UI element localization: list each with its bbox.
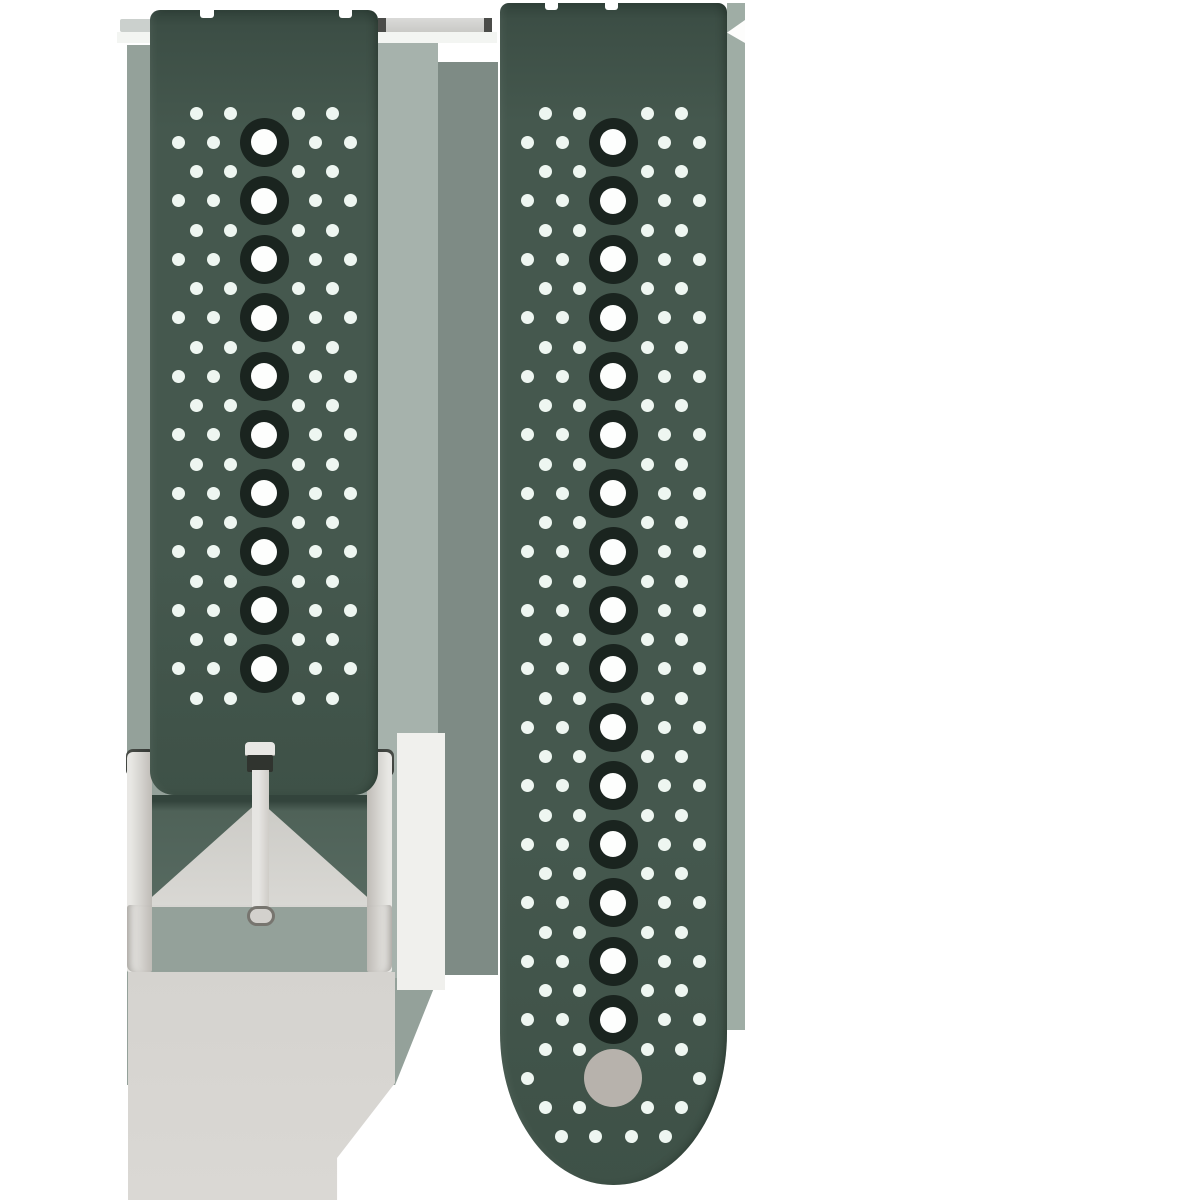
- vent-dot: [172, 428, 185, 441]
- vent-dot: [658, 136, 671, 149]
- strap-buckle-hole-opening: [600, 890, 626, 916]
- vent-dot: [675, 341, 688, 354]
- vent-dot: [309, 136, 322, 149]
- vent-dot: [539, 458, 552, 471]
- vent-dot: [224, 107, 237, 120]
- vent-dot: [344, 136, 357, 149]
- vent-dot: [172, 194, 185, 207]
- strap-buckle-hole: [589, 469, 638, 518]
- vent-dot: [344, 604, 357, 617]
- spring-bar-highlight: [378, 32, 497, 43]
- vent-dot: [539, 867, 552, 880]
- vent-dot: [641, 575, 654, 588]
- vent-dot: [292, 107, 305, 120]
- vent-dot: [693, 779, 706, 792]
- vent-dot: [556, 487, 569, 500]
- vent-dot: [521, 838, 534, 851]
- vent-dot: [521, 1072, 534, 1085]
- spring-bar-tip-dark-right: [484, 18, 492, 32]
- vent-dot: [556, 1013, 569, 1026]
- vent-dot: [573, 867, 586, 880]
- vent-dot: [309, 370, 322, 383]
- vent-dot: [658, 779, 671, 792]
- vent-dot: [539, 282, 552, 295]
- vent-dot: [309, 604, 322, 617]
- strap-buckle-hole: [240, 586, 289, 635]
- lug-slot-notch: [339, 10, 352, 18]
- vent-dot: [521, 896, 534, 909]
- vent-dot: [573, 692, 586, 705]
- strap-buckle-hole-opening: [600, 305, 626, 331]
- vent-dot: [693, 253, 706, 266]
- vent-dot: [521, 253, 534, 266]
- vent-dot: [573, 1043, 586, 1056]
- vent-dot: [573, 1101, 586, 1114]
- vent-dot: [573, 575, 586, 588]
- vent-dot: [675, 224, 688, 237]
- strap-buckle-hole-opening: [600, 597, 626, 623]
- vent-dot: [172, 253, 185, 266]
- vent-dot: [292, 165, 305, 178]
- vent-dot: [589, 1130, 602, 1143]
- vent-dot: [521, 194, 534, 207]
- vent-dot: [207, 311, 220, 324]
- vent-dot: [573, 224, 586, 237]
- vent-dot: [556, 604, 569, 617]
- vent-dot: [573, 282, 586, 295]
- vent-dot: [539, 165, 552, 178]
- vent-dot: [539, 107, 552, 120]
- strap-buckle-hole-opening: [251, 129, 277, 155]
- vent-dot: [675, 1043, 688, 1056]
- vent-dot: [521, 545, 534, 558]
- vent-dot: [326, 458, 339, 471]
- vent-dot: [556, 838, 569, 851]
- vent-dot: [658, 955, 671, 968]
- strap-buckle-hole-opening: [251, 539, 277, 565]
- vent-dot: [190, 458, 203, 471]
- vent-dot: [224, 633, 237, 646]
- vent-dot: [693, 311, 706, 324]
- vent-dot: [292, 458, 305, 471]
- strap-buckle-hole-opening: [600, 363, 626, 389]
- vent-dot: [190, 165, 203, 178]
- vent-dot: [658, 311, 671, 324]
- vent-dot: [658, 428, 671, 441]
- vent-dot: [344, 487, 357, 500]
- vent-dot: [521, 136, 534, 149]
- vent-dot: [641, 458, 654, 471]
- vent-dot: [190, 575, 203, 588]
- vent-dot: [172, 487, 185, 500]
- strap-buckle-hole-opening: [251, 305, 277, 331]
- spring-bar-pin: [378, 18, 492, 32]
- vent-dot: [539, 341, 552, 354]
- vent-dot: [207, 194, 220, 207]
- vent-dot: [521, 311, 534, 324]
- vent-dot: [172, 136, 185, 149]
- strap-buckle-hole: [589, 644, 638, 693]
- vent-dot: [556, 194, 569, 207]
- vent-dot: [675, 458, 688, 471]
- vent-dot: [675, 750, 688, 763]
- vent-dot: [658, 545, 671, 558]
- tang-cap: [245, 742, 275, 755]
- strap-buckle-hole-opening: [251, 246, 277, 272]
- vent-dot: [172, 662, 185, 675]
- vent-dot: [309, 311, 322, 324]
- strap-buckle-hole: [240, 410, 289, 459]
- strap-buckle-hole-opening: [600, 948, 626, 974]
- strap-buckle-hole: [589, 995, 638, 1044]
- vent-dot: [292, 341, 305, 354]
- vent-dot: [224, 516, 237, 529]
- tang-shaft: [252, 770, 269, 910]
- vent-dot: [556, 896, 569, 909]
- vent-dot: [309, 662, 322, 675]
- spring-bar-tip-left-strap-highlight: [117, 32, 150, 43]
- vent-dot: [172, 604, 185, 617]
- vent-dot: [190, 692, 203, 705]
- vent-dot: [344, 545, 357, 558]
- vent-dot: [539, 224, 552, 237]
- vent-dot: [521, 779, 534, 792]
- strap-buckle-hole-opening: [251, 363, 277, 389]
- strap-buckle-hole-opening: [600, 480, 626, 506]
- vent-dot: [326, 224, 339, 237]
- strap-buckle-hole-opening: [251, 188, 277, 214]
- vent-dot: [641, 107, 654, 120]
- strap-buckle-hole: [589, 293, 638, 342]
- vent-dot: [693, 662, 706, 675]
- vent-dot: [556, 955, 569, 968]
- vent-dot: [292, 633, 305, 646]
- vent-dot: [573, 399, 586, 412]
- vent-dot: [539, 575, 552, 588]
- vent-dot: [190, 224, 203, 237]
- vent-dot: [539, 516, 552, 529]
- vent-dot: [326, 692, 339, 705]
- strap-buckle-hole-opening: [600, 539, 626, 565]
- vent-dot: [539, 1101, 552, 1114]
- vent-dot: [207, 545, 220, 558]
- strap-buckle-hole: [589, 527, 638, 576]
- vent-dot: [309, 487, 322, 500]
- strap-buckle-hole-opening: [600, 714, 626, 740]
- background-band-right: [727, 3, 745, 1030]
- vent-dot: [539, 750, 552, 763]
- spring-bar-tip-left-strap: [120, 19, 150, 32]
- vent-dot: [573, 516, 586, 529]
- vent-dot: [292, 399, 305, 412]
- strap-buckle-hole: [240, 235, 289, 284]
- vent-dot: [207, 253, 220, 266]
- strap-end-plug-circle: [584, 1049, 642, 1107]
- vent-dot: [641, 282, 654, 295]
- vent-dot: [224, 575, 237, 588]
- vent-dot: [658, 1013, 671, 1026]
- vent-dot: [292, 224, 305, 237]
- vent-dot: [641, 341, 654, 354]
- vent-dot: [573, 165, 586, 178]
- vent-dot: [556, 253, 569, 266]
- vent-dot: [172, 370, 185, 383]
- vent-dot: [693, 194, 706, 207]
- vent-dot: [521, 370, 534, 383]
- strap-buckle-hole: [589, 352, 638, 401]
- vent-dot: [693, 838, 706, 851]
- vent-dot: [658, 370, 671, 383]
- strap-buckle-hole: [240, 293, 289, 342]
- vent-dot: [190, 341, 203, 354]
- vent-dot: [309, 194, 322, 207]
- vent-dot: [573, 926, 586, 939]
- vent-dot: [521, 428, 534, 441]
- strap-buckle-hole: [589, 761, 638, 810]
- vent-dot: [641, 1101, 654, 1114]
- product-image-watch-strap: [0, 0, 1200, 1200]
- vent-dot: [326, 341, 339, 354]
- vent-dot: [326, 165, 339, 178]
- vent-dot: [693, 1072, 706, 1085]
- strap-buckle-hole-opening: [600, 773, 626, 799]
- vent-dot: [658, 253, 671, 266]
- strap-buckle-hole-opening: [600, 246, 626, 272]
- vent-dot: [521, 604, 534, 617]
- vent-dot: [224, 399, 237, 412]
- vent-dot: [641, 224, 654, 237]
- vent-dot: [675, 399, 688, 412]
- vent-dot: [675, 867, 688, 880]
- strap-buckle-hole-opening: [251, 422, 277, 448]
- vent-dot: [658, 721, 671, 734]
- vent-dot: [693, 370, 706, 383]
- lug-slot-notch: [200, 10, 214, 18]
- vent-dot: [693, 428, 706, 441]
- vent-dot: [556, 779, 569, 792]
- vent-dot: [172, 311, 185, 324]
- vent-dot: [693, 721, 706, 734]
- vent-dot: [344, 428, 357, 441]
- vent-dot: [658, 487, 671, 500]
- vent-dot: [207, 428, 220, 441]
- vent-dot: [675, 282, 688, 295]
- vent-dot: [573, 633, 586, 646]
- vent-dot: [224, 282, 237, 295]
- buckle-side-reflection: [397, 733, 445, 990]
- strap-buckle-hole: [589, 820, 638, 869]
- vent-dot: [172, 545, 185, 558]
- vent-dot: [641, 926, 654, 939]
- vent-dot: [693, 604, 706, 617]
- vent-dot: [556, 545, 569, 558]
- strap-long-piece: [500, 3, 727, 1185]
- vent-dot: [658, 838, 671, 851]
- strap-buckle-hole: [589, 118, 638, 167]
- vent-dot: [521, 721, 534, 734]
- vent-dot: [658, 662, 671, 675]
- vent-dot: [693, 487, 706, 500]
- lug-slot-notch: [545, 3, 558, 10]
- vent-dot: [224, 458, 237, 471]
- vent-dot: [224, 341, 237, 354]
- vent-dot: [641, 165, 654, 178]
- tang-tip-ring: [247, 906, 275, 926]
- vent-dot: [556, 311, 569, 324]
- vent-dot: [521, 487, 534, 500]
- vent-dot: [556, 721, 569, 734]
- strap-buckle-hole-opening: [600, 422, 626, 448]
- vent-dot: [521, 1013, 534, 1026]
- buckle-drop-shadow: [128, 972, 395, 1200]
- vent-dot: [641, 633, 654, 646]
- vent-dot: [693, 136, 706, 149]
- strap-buckle-hole-opening: [600, 831, 626, 857]
- strap-buckle-hole: [589, 703, 638, 752]
- strap-buckle-hole: [589, 937, 638, 986]
- vent-dot: [573, 107, 586, 120]
- vent-dot: [675, 692, 688, 705]
- vent-dot: [675, 926, 688, 939]
- vent-dot: [641, 984, 654, 997]
- vent-dot: [675, 516, 688, 529]
- vent-dot: [207, 370, 220, 383]
- vent-dot: [573, 809, 586, 822]
- vent-dot: [326, 282, 339, 295]
- vent-dot: [292, 692, 305, 705]
- vent-dot: [344, 194, 357, 207]
- vent-dot: [658, 194, 671, 207]
- vent-dot: [344, 311, 357, 324]
- vent-dot: [190, 633, 203, 646]
- vent-dot: [675, 809, 688, 822]
- vent-dot: [190, 107, 203, 120]
- vent-dot: [675, 165, 688, 178]
- vent-dot: [555, 1130, 568, 1143]
- vent-dot: [641, 516, 654, 529]
- vent-dot: [693, 955, 706, 968]
- vent-dot: [326, 107, 339, 120]
- vent-dot: [641, 692, 654, 705]
- vent-dot: [573, 458, 586, 471]
- vent-dot: [658, 604, 671, 617]
- vent-dot: [539, 633, 552, 646]
- vent-dot: [641, 867, 654, 880]
- strap-buckle-hole: [589, 878, 638, 927]
- strap-buckle-hole-opening: [251, 656, 277, 682]
- vent-dot: [675, 984, 688, 997]
- strap-buckle-hole-opening: [251, 597, 277, 623]
- vent-dot: [675, 633, 688, 646]
- strap-buckle-hole: [589, 176, 638, 225]
- strap-buckle-hole-opening: [600, 129, 626, 155]
- vent-dot: [207, 662, 220, 675]
- strap-buckle-hole-opening: [251, 480, 277, 506]
- vent-dot: [675, 575, 688, 588]
- vent-dot: [190, 282, 203, 295]
- vent-dot: [641, 399, 654, 412]
- vent-dot: [573, 750, 586, 763]
- vent-dot: [207, 604, 220, 617]
- vent-dot: [224, 165, 237, 178]
- background-band-middle: [438, 62, 498, 975]
- spring-bar-tip-dark-left: [378, 18, 386, 32]
- strap-buckle-hole: [240, 469, 289, 518]
- strap-buckle-hole: [240, 644, 289, 693]
- strap-buckle-hole: [240, 527, 289, 576]
- vent-dot: [539, 809, 552, 822]
- vent-dot: [224, 692, 237, 705]
- vent-dot: [344, 370, 357, 383]
- vent-dot: [292, 282, 305, 295]
- lug-slot-notch: [605, 3, 618, 10]
- vent-dot: [641, 1043, 654, 1056]
- vent-dot: [658, 896, 671, 909]
- strap-buckle-hole-opening: [600, 188, 626, 214]
- strap-buckle-hole: [240, 118, 289, 167]
- vent-dot: [539, 984, 552, 997]
- vent-dot: [556, 136, 569, 149]
- vent-dot: [539, 692, 552, 705]
- vent-dot: [556, 428, 569, 441]
- strap-buckle-hole-opening: [600, 1007, 626, 1033]
- vent-dot: [539, 1043, 552, 1056]
- vent-dot: [539, 399, 552, 412]
- vent-dot: [309, 428, 322, 441]
- vent-dot: [326, 399, 339, 412]
- vent-dot: [693, 1013, 706, 1026]
- vent-dot: [326, 633, 339, 646]
- vent-dot: [539, 926, 552, 939]
- strap-buckle-hole-opening: [600, 656, 626, 682]
- vent-dot: [224, 224, 237, 237]
- vent-dot: [625, 1130, 638, 1143]
- vent-dot: [675, 1101, 688, 1114]
- vent-dot: [693, 896, 706, 909]
- vent-dot: [309, 253, 322, 266]
- vent-dot: [521, 955, 534, 968]
- vent-dot: [344, 253, 357, 266]
- vent-dot: [344, 662, 357, 675]
- vent-dot: [326, 516, 339, 529]
- vent-dot: [659, 1130, 672, 1143]
- vent-dot: [207, 487, 220, 500]
- vent-dot: [292, 516, 305, 529]
- vent-dot: [190, 399, 203, 412]
- vent-dot: [521, 662, 534, 675]
- vent-dot: [326, 575, 339, 588]
- vent-dot: [675, 107, 688, 120]
- vent-dot: [641, 750, 654, 763]
- strap-short-piece: [150, 10, 378, 795]
- vent-dot: [641, 809, 654, 822]
- strap-buckle-hole: [589, 586, 638, 635]
- strap-buckle-hole: [589, 235, 638, 284]
- vent-dot: [207, 136, 220, 149]
- vent-dot: [556, 662, 569, 675]
- vent-dot: [292, 575, 305, 588]
- vent-dot: [556, 370, 569, 383]
- vent-dot: [573, 341, 586, 354]
- vent-dot: [573, 984, 586, 997]
- strap-buckle-hole: [240, 176, 289, 225]
- vent-dot: [309, 545, 322, 558]
- strap-buckle-hole: [240, 352, 289, 401]
- strap-buckle-hole: [589, 410, 638, 459]
- vent-dot: [693, 545, 706, 558]
- vent-dot: [190, 516, 203, 529]
